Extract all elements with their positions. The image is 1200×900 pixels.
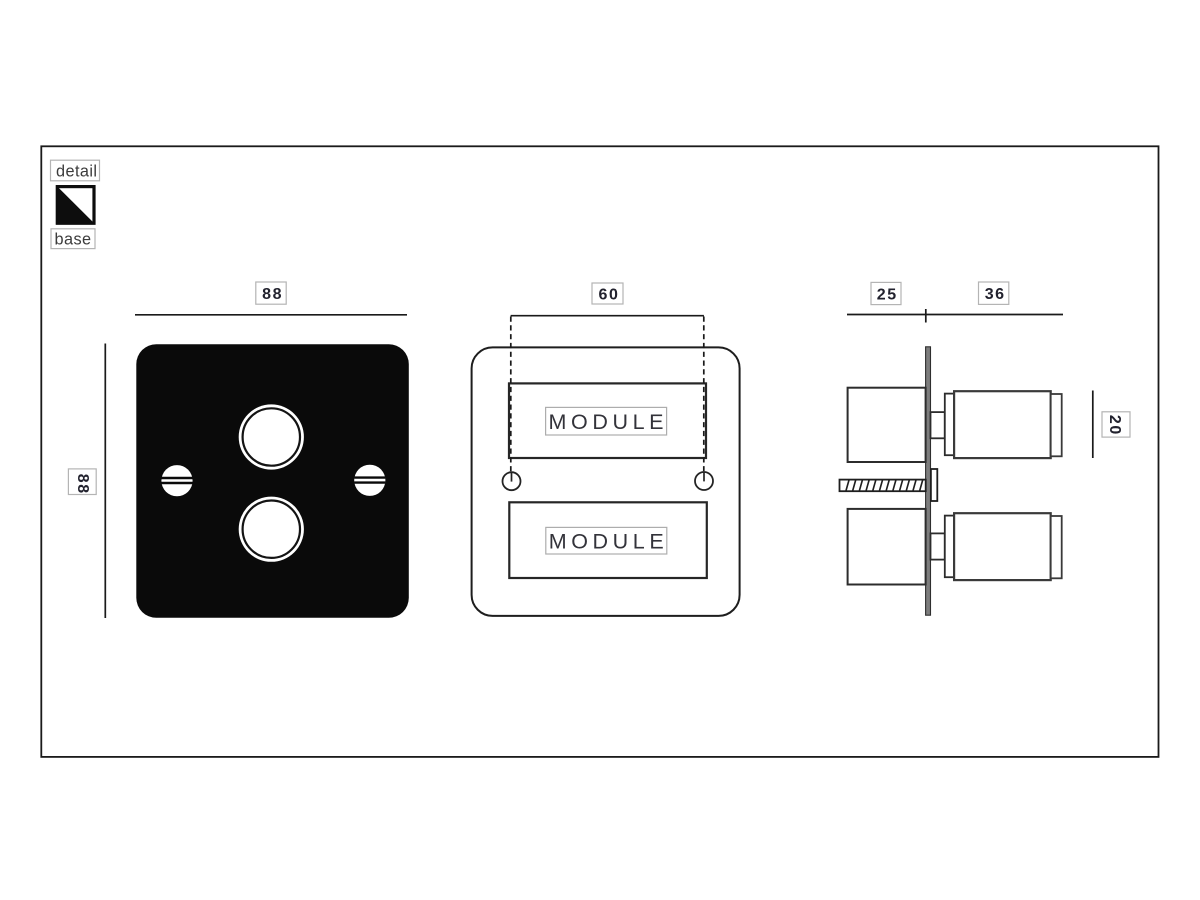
svg-text:detail: detail — [56, 162, 97, 180]
svg-text:MODULE: MODULE — [549, 410, 669, 434]
svg-text:25: 25 — [877, 286, 898, 303]
svg-text:88: 88 — [262, 286, 283, 303]
svg-text:base: base — [55, 231, 92, 249]
svg-text:36: 36 — [985, 286, 1006, 303]
svg-text:20: 20 — [1106, 415, 1123, 436]
svg-text:60: 60 — [599, 286, 620, 303]
svg-text:MODULE: MODULE — [549, 530, 669, 554]
svg-text:88: 88 — [74, 474, 91, 495]
